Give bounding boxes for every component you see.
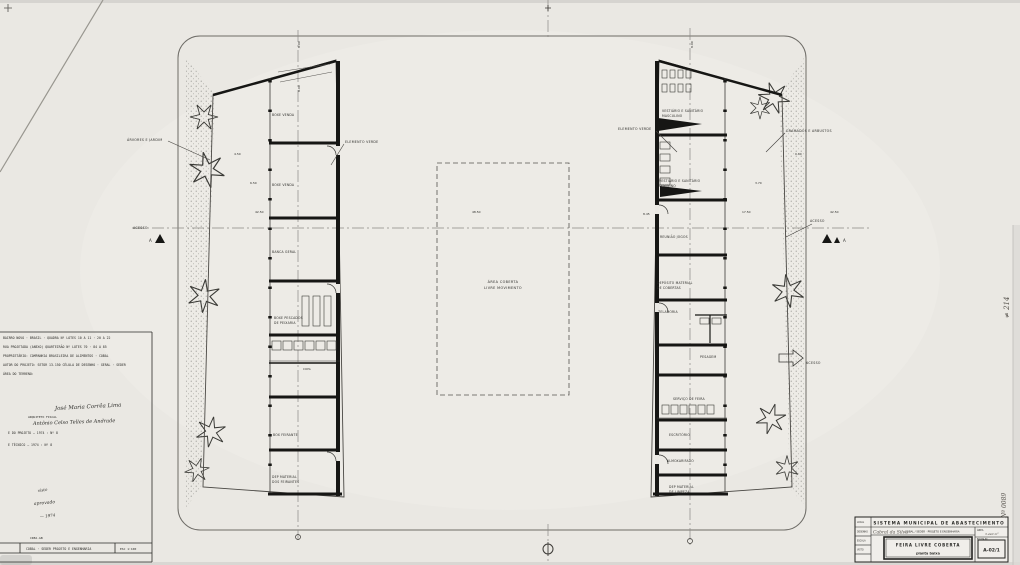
room-label: FEMININO [659,184,676,188]
section-letter-left: A [149,238,152,243]
area-label: ÁREA [977,529,984,532]
org-line: COBAL / SEDER · PROJETO E ENGENHARIA [905,530,960,534]
room-label: PESAGEM [700,355,716,359]
info-line: BAIRRO NOVO · BRASIL · QUADRA Nº LOTES 1… [3,336,111,340]
room-label: BOXE VENDA [272,183,295,187]
room-label: BOXE VENDA [272,113,295,117]
title-block-side-label: DESENHO [857,531,868,534]
crea-label: CREA-GB [30,536,43,540]
registry-line: E DO PROJETO — 1974 : Nº 8 [8,431,58,435]
local-handwritten: Cabral da Silva [873,530,908,536]
room-label: VESTIÁRIO E SANITÁRIO [659,178,701,183]
dimension-label: 42.50 [830,210,839,214]
plan-sheet: BOXE VENDA BOXE VENDA BANCA GERAL BOXE P… [0,0,1020,565]
access-label-right: ACESSO [810,219,825,223]
dimension-label: 8.00 [297,85,301,92]
registry-line: E TÉCNICO — 1974 : Nº 8 [8,442,52,447]
dimension-label: 42.50 [255,210,264,214]
green-element-label-right: ELEMENTO VERDE [618,127,652,131]
room-label: BOX FEIRANTE [273,433,298,437]
room-label: BOXE PESCADOS [274,316,303,320]
sheet-label: FOLHA Nº [977,538,988,541]
dimension-label: 0.90 [795,152,802,156]
planting-label-right: GRAMADOS E ARBUSTOS [786,129,832,133]
room-label: REUNIÃO JOGOS [660,234,688,239]
info-line: AUTOR DO PROJETO: SETOR 13.150 CÉLULA DE… [3,362,126,367]
info-footer: COBAL · SEDER PROJETO E ENGENHARIA [26,547,91,551]
drawing-subtitle: planta baixa [916,552,940,556]
green-element-label-left: ELEMENTO VERDE [345,140,379,144]
courtyard-label: ÁREA COBERTA [488,279,519,284]
margin-note-bottom: Nº 0089 [1001,493,1008,519]
room-label: VESTIÁRIO E SANITÁRIO [662,108,704,113]
room-label: BANCA GERAL [272,250,296,254]
room-label: ALMOXARIFADO [667,459,694,463]
room-label: SERVIÇO DE FEIRA [673,397,705,401]
info-line: PROPRIETÁRIO: COMPANHIA BRASILEIRA DE AL… [3,353,109,358]
dimension-label: 6.50 [250,181,257,185]
room-label: DOS FEIRANTES [272,480,299,484]
dimension-label: 8.45 [643,212,650,216]
info-line: ÁREA DO TERRENO: [3,371,34,376]
room-label: DEPÓSITO MATERIAL [657,280,693,285]
room-label: DE COBERTAS [657,286,681,290]
title-block-side-label: VISTO [857,549,864,552]
dimension-label: 8.00 [297,41,301,48]
room-label: MASCULINO [662,114,683,118]
access-label-left: ACESSO [133,226,148,230]
dimension-label: 8.00 [690,41,694,48]
room-label: ZELADORIA [658,310,678,314]
info-line: RUA PROJETADA (ANEXO) QUARTEIRÃO Nº LOTE… [3,344,107,349]
room-label: ESCRITÓRIO [669,432,690,437]
access-label-bottom: ACESSO [806,361,821,365]
room-label: DE LIMPEZA [669,490,690,494]
section-letter-right: A [843,238,846,243]
info-footer-scale: ESC 1:100 [120,547,136,551]
planting-label-left: ÁRVORES E JARDIM [127,137,162,142]
architect-label: ARQUITETO FISCAL [28,415,57,419]
title-block-title: SISTEMA MUNICIPAL DE ABASTECIMENTO [873,521,1004,526]
dimension-label: 48.50 [472,210,481,214]
dimension-label: 4.50 [234,152,241,156]
courtyard-label: LIVRE MOVIMENTO [484,286,522,290]
drawing-title: FEIRA LIVRE COBERTA [896,543,961,548]
title-block: SISTEMA MUNICIPAL DE ABASTECIMENTO LOCAL… [855,517,1008,562]
dimension-label: 17.50 [742,210,751,214]
title-block-side-label: LOCAL [857,521,865,524]
room-label: DEP MATERIAL [669,485,694,489]
title-block-side-label: ESCALA [857,540,866,543]
sheet-number: A-02/1 [983,548,1000,554]
dimension-label: 3.70 [755,181,762,185]
margin-note-mid: ≠ 214 [1003,297,1011,318]
room-label: DEP MATERIAL [272,475,297,479]
room-label: COPA [303,367,311,371]
area-value: 3.440 m² [985,532,999,536]
room-label: DE PEIXARIA [274,321,296,325]
